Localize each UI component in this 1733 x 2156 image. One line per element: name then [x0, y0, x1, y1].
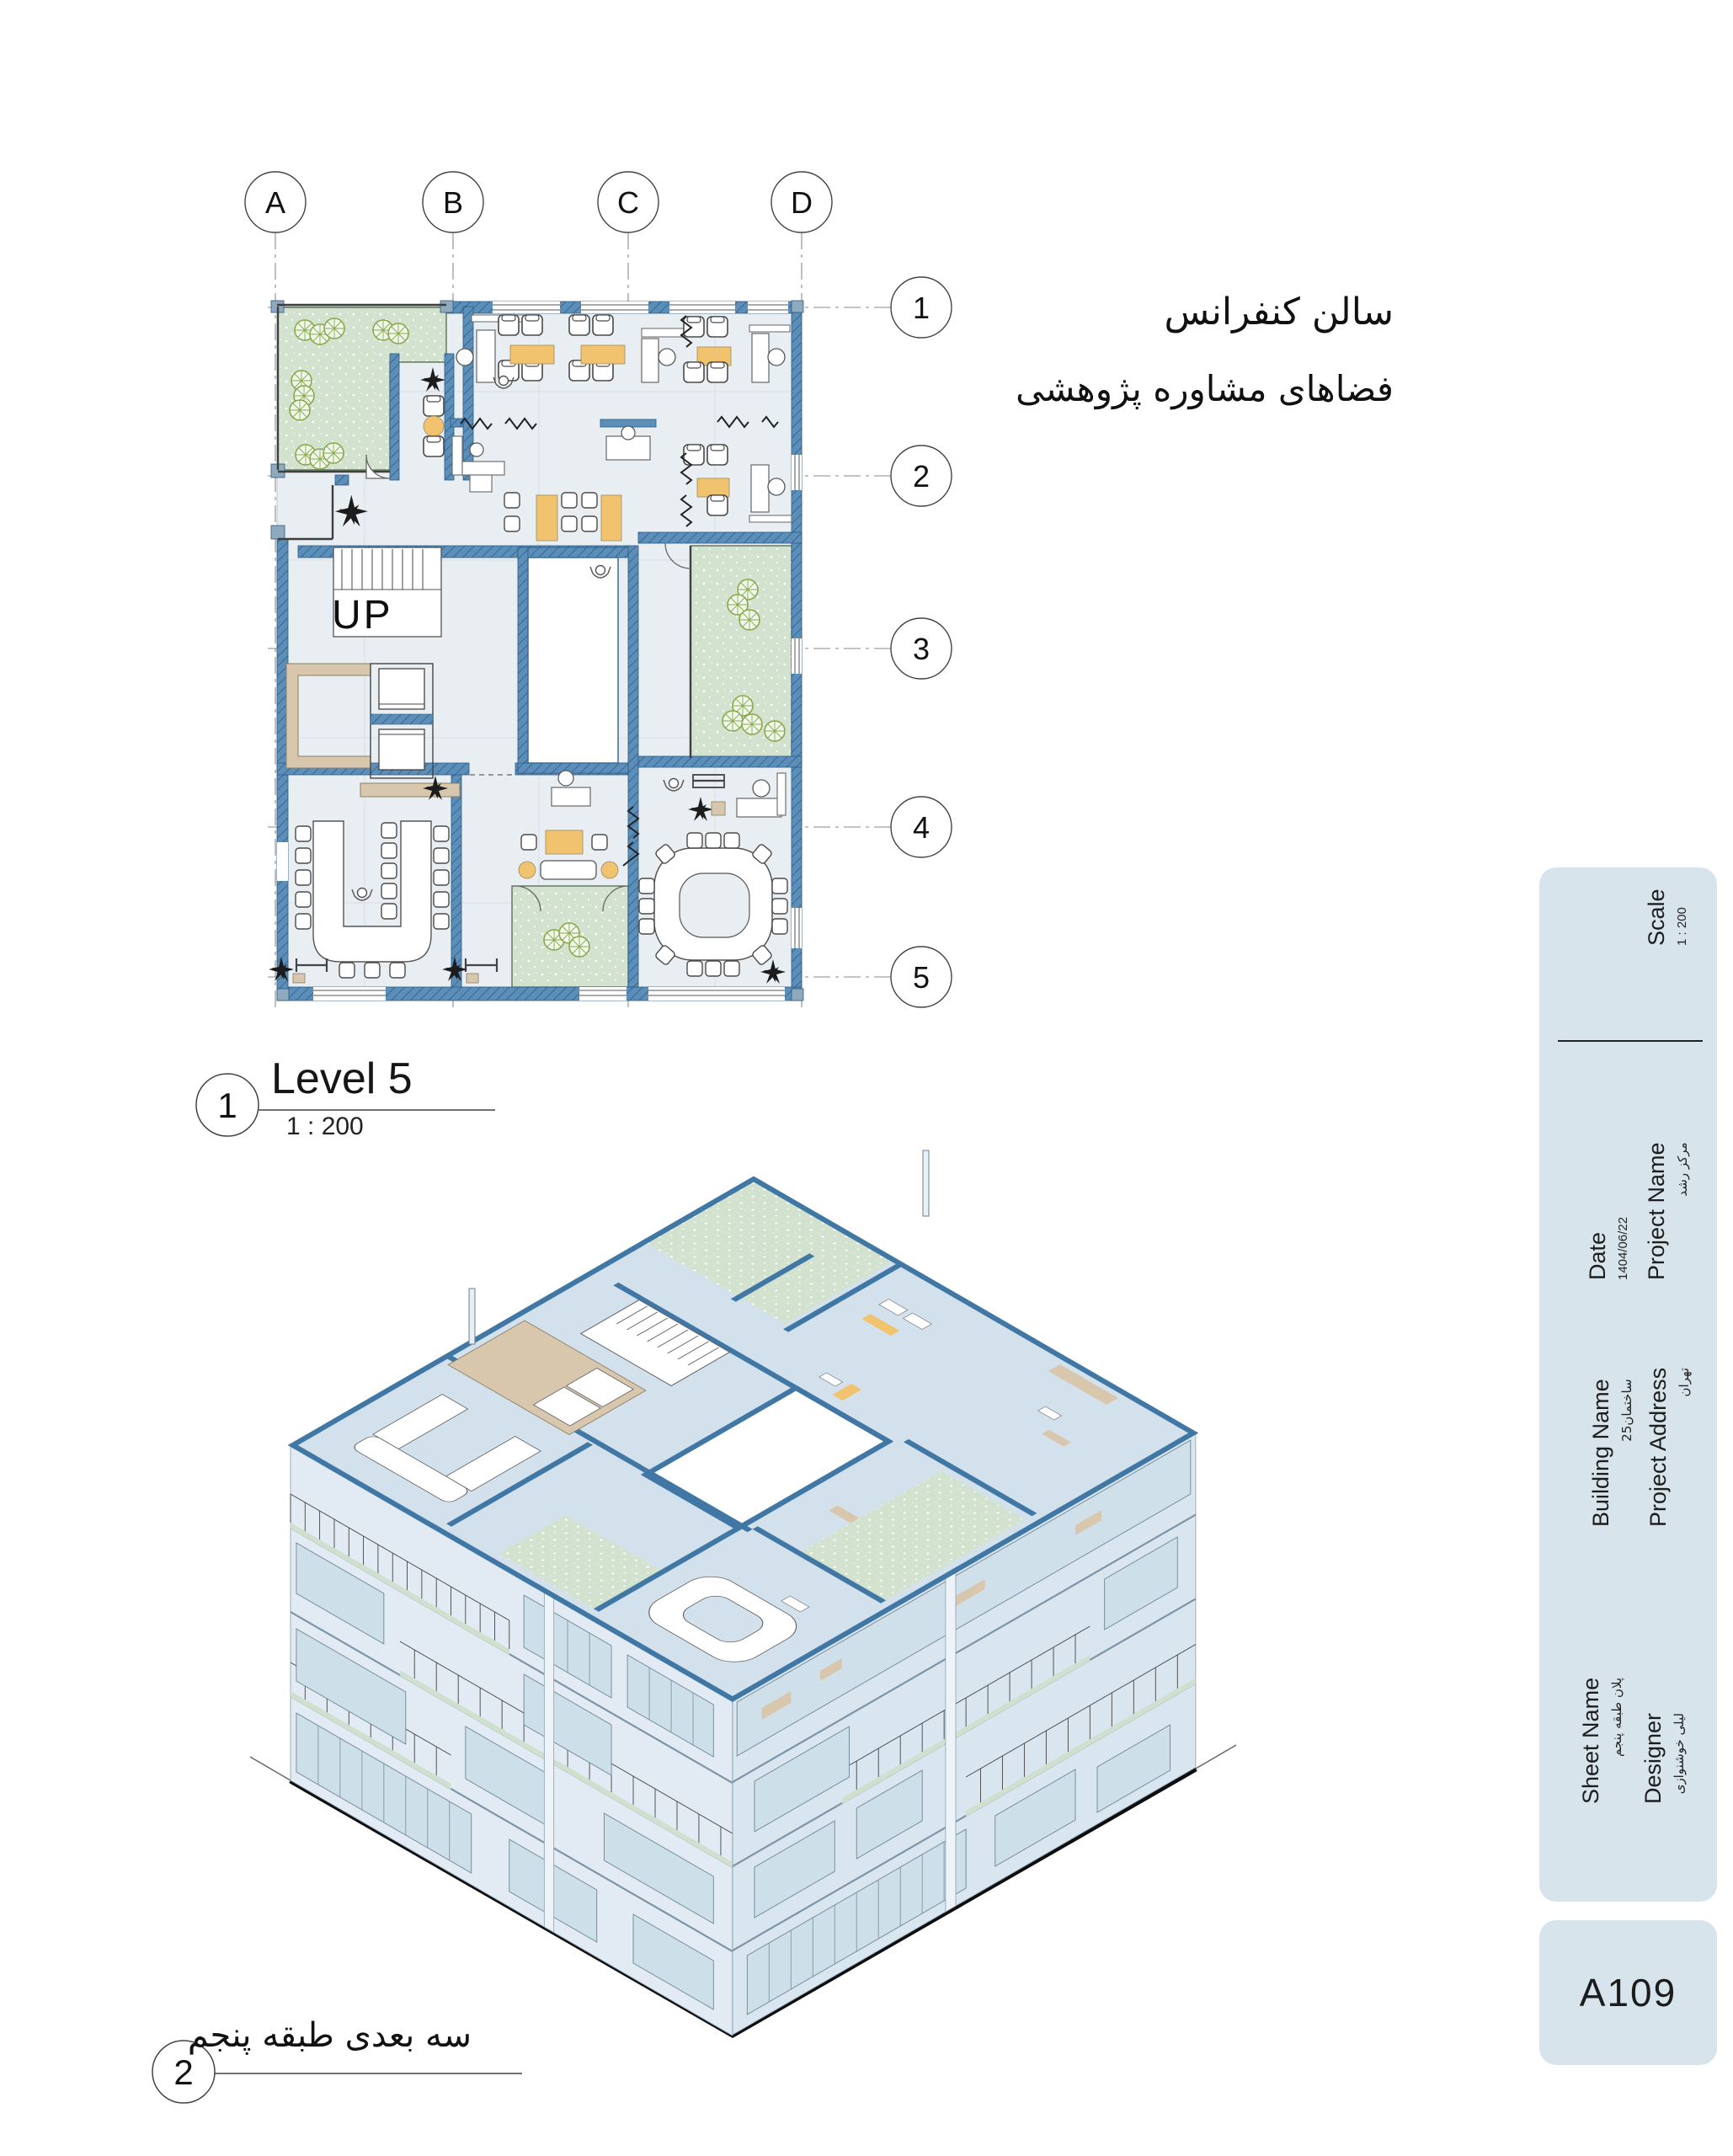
field-project-name: Project Name مرکز رشد	[1644, 1142, 1690, 1280]
iso-view	[250, 1150, 1236, 2036]
drawing-sheet: A B C D 1 2 3 4 5 1 2	[0, 0, 1733, 2156]
designer-label: Designer	[1640, 1713, 1666, 1804]
sheet-name-label: Sheet Name	[1578, 1678, 1604, 1804]
iso-viewport-title: سه بعدی طبقه پنجم	[202, 2018, 472, 2053]
date-value: 1404/06/22	[1616, 1217, 1630, 1280]
title-block: Scale 1 : 200 Date 1404/06/22 Project Na…	[1539, 867, 1717, 1902]
grid-bubble-b: B	[443, 185, 463, 220]
grid-bubble-c: C	[617, 185, 639, 220]
designer-value: لیلی خوشنوازی	[1672, 1713, 1687, 1804]
field-project-address: Project Address تهران	[1645, 1368, 1692, 1527]
atrium-void	[528, 558, 618, 763]
grid-bubble-2: 2	[913, 459, 930, 494]
plan-viewport-scale: 1 : 200	[286, 1113, 364, 1140]
field-designer: Designer لیلی خوشنوازی	[1640, 1713, 1687, 1804]
project-name-label: Project Name	[1644, 1142, 1670, 1280]
stair-up-label: UP	[332, 595, 393, 637]
sheet-number-panel: A109	[1539, 1920, 1717, 2065]
field-sheet-name: Sheet Name پلان طبقه پنجم	[1578, 1678, 1624, 1804]
project-address-label: Project Address	[1645, 1368, 1672, 1527]
date-label: Date	[1585, 1217, 1611, 1280]
sheet-graphics: A B C D 1 2 3 4 5 1 2	[0, 0, 1733, 2156]
note-research-consult-spaces: فضاهای مشاوره پژوهشی	[964, 371, 1394, 408]
seating-nook	[420, 367, 445, 456]
grid-bubble-5: 5	[913, 960, 930, 995]
project-name-value: مرکز رشد	[1675, 1142, 1690, 1280]
building-name-value: ساختمان25	[1619, 1379, 1634, 1527]
grid-bubble-a: A	[265, 185, 285, 220]
viewport-2-number: 2	[173, 2052, 193, 2092]
grid-bubble-3: 3	[913, 632, 930, 666]
building-name-label: Building Name	[1588, 1379, 1614, 1527]
scale-value: 1 : 200	[1675, 889, 1689, 946]
field-date: Date 1404/06/22	[1585, 1217, 1630, 1280]
plan-viewport-title: Level 5	[271, 1056, 413, 1102]
grid-bubble-1: 1	[913, 291, 930, 325]
note-conference-hall: سالن کنفرانس	[973, 293, 1394, 332]
iso-post	[469, 1289, 475, 1344]
viewport-1-number: 1	[217, 1086, 237, 1125]
grid-bubble-d: D	[791, 185, 813, 220]
sheet-number: A109	[1580, 1970, 1677, 2015]
floor-plan	[269, 301, 803, 1001]
project-address-value: تهران	[1677, 1368, 1692, 1527]
field-building-name: Building Name ساختمان25	[1588, 1379, 1634, 1527]
field-scale: Scale 1 : 200	[1644, 889, 1689, 946]
scale-label: Scale	[1644, 889, 1670, 946]
iso-post	[923, 1150, 929, 1216]
title-block-divider	[1558, 1040, 1703, 1042]
title-block-rotated-content: Scale 1 : 200 Date 1404/06/22 Project Na…	[1539, 867, 1717, 1902]
sheet-name-value: پلان طبقه پنجم	[1609, 1678, 1624, 1804]
grid-bubble-4: 4	[913, 810, 930, 845]
